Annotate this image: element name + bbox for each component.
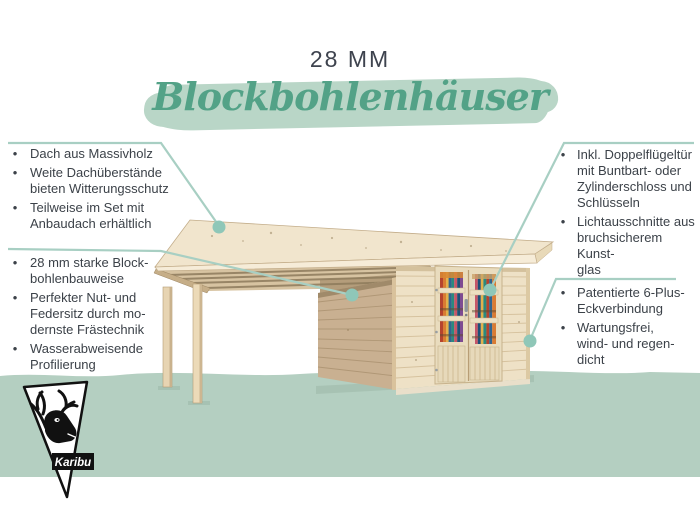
corner-trim-right bbox=[526, 268, 530, 380]
logo-label: Karibu bbox=[55, 457, 91, 469]
bullet-icon: • bbox=[556, 320, 570, 368]
feature-item: • Inkl. Doppelflügeltür mit Buntbart- od… bbox=[556, 147, 700, 211]
feature-text: Lichtausschnitte aus bruchsicherem Kunst… bbox=[577, 214, 700, 278]
feature-item: • Dach aus Massivholz bbox=[8, 146, 186, 162]
bullet-icon: • bbox=[556, 147, 570, 211]
feature-text: 28 mm starke Block- bohlenbauweise bbox=[30, 255, 148, 287]
feature-text: Wartungsfrei, wind- und regen- dicht bbox=[577, 320, 675, 368]
feature-text: Inkl. Doppelflügeltür mit Buntbart- oder… bbox=[577, 147, 692, 211]
feature-group-walls: • 28 mm starke Block- bohlenbauweise • P… bbox=[8, 255, 186, 376]
feature-item: • Lichtausschnitte aus bruchsicherem Kun… bbox=[556, 214, 700, 278]
bullet-icon: • bbox=[556, 285, 570, 317]
feature-text: Patentierte 6-Plus- Eckverbindung bbox=[577, 285, 685, 317]
callout-dot-corner bbox=[524, 335, 537, 348]
feature-item: • Weite Dachüberstände bieten Witterungs… bbox=[8, 165, 186, 197]
bullet-icon: • bbox=[8, 200, 22, 232]
feature-text: Wasserabweisende Profilierung bbox=[30, 341, 143, 373]
feature-group-roof: • Dach aus Massivholz • Weite Dachüberst… bbox=[8, 146, 186, 235]
feature-item: • Patentierte 6-Plus- Eckverbindung bbox=[556, 285, 700, 317]
feature-group-construction: • Patentierte 6-Plus- Eckverbindung • Wa… bbox=[556, 285, 700, 371]
feature-item: • Teilweise im Set mit Anbaudach erhältl… bbox=[8, 200, 186, 232]
feature-item: • Wasserabweisende Profilierung bbox=[8, 341, 186, 373]
page-root: Karibu 28 MM Blockbohlenhäuser • Dach au… bbox=[0, 0, 700, 525]
feature-text: Teilweise im Set mit Anbaudach erhältlic… bbox=[30, 200, 151, 232]
feature-item: • Wartungsfrei, wind- und regen- dicht bbox=[556, 320, 700, 368]
callout-dot-door bbox=[484, 284, 497, 297]
bullet-icon: • bbox=[8, 146, 22, 162]
feature-group-door: • Inkl. Doppelflügeltür mit Buntbart- od… bbox=[556, 147, 700, 281]
door-glass-left bbox=[440, 272, 463, 342]
feature-item: • 28 mm starke Block- bohlenbauweise bbox=[8, 255, 186, 287]
bullet-icon: • bbox=[8, 165, 22, 197]
feature-text: Weite Dachüberstände bieten Witterungssc… bbox=[30, 165, 169, 197]
feature-text: Dach aus Massivholz bbox=[30, 146, 153, 162]
feature-text: Perfekter Nut- und Federsitz durch mo- d… bbox=[30, 290, 146, 338]
bullet-icon: • bbox=[8, 290, 22, 338]
feature-item: • Perfekter Nut- und Federsitz durch mo-… bbox=[8, 290, 186, 338]
bullet-icon: • bbox=[8, 255, 22, 287]
size-label: 28 MM bbox=[0, 46, 700, 73]
bullet-icon: • bbox=[8, 341, 22, 373]
bullet-icon: • bbox=[556, 214, 570, 278]
page-title: Blockbohlenhäuser bbox=[0, 74, 700, 119]
callout-dot-roof bbox=[213, 221, 226, 234]
callout-dot-wall bbox=[346, 289, 359, 302]
